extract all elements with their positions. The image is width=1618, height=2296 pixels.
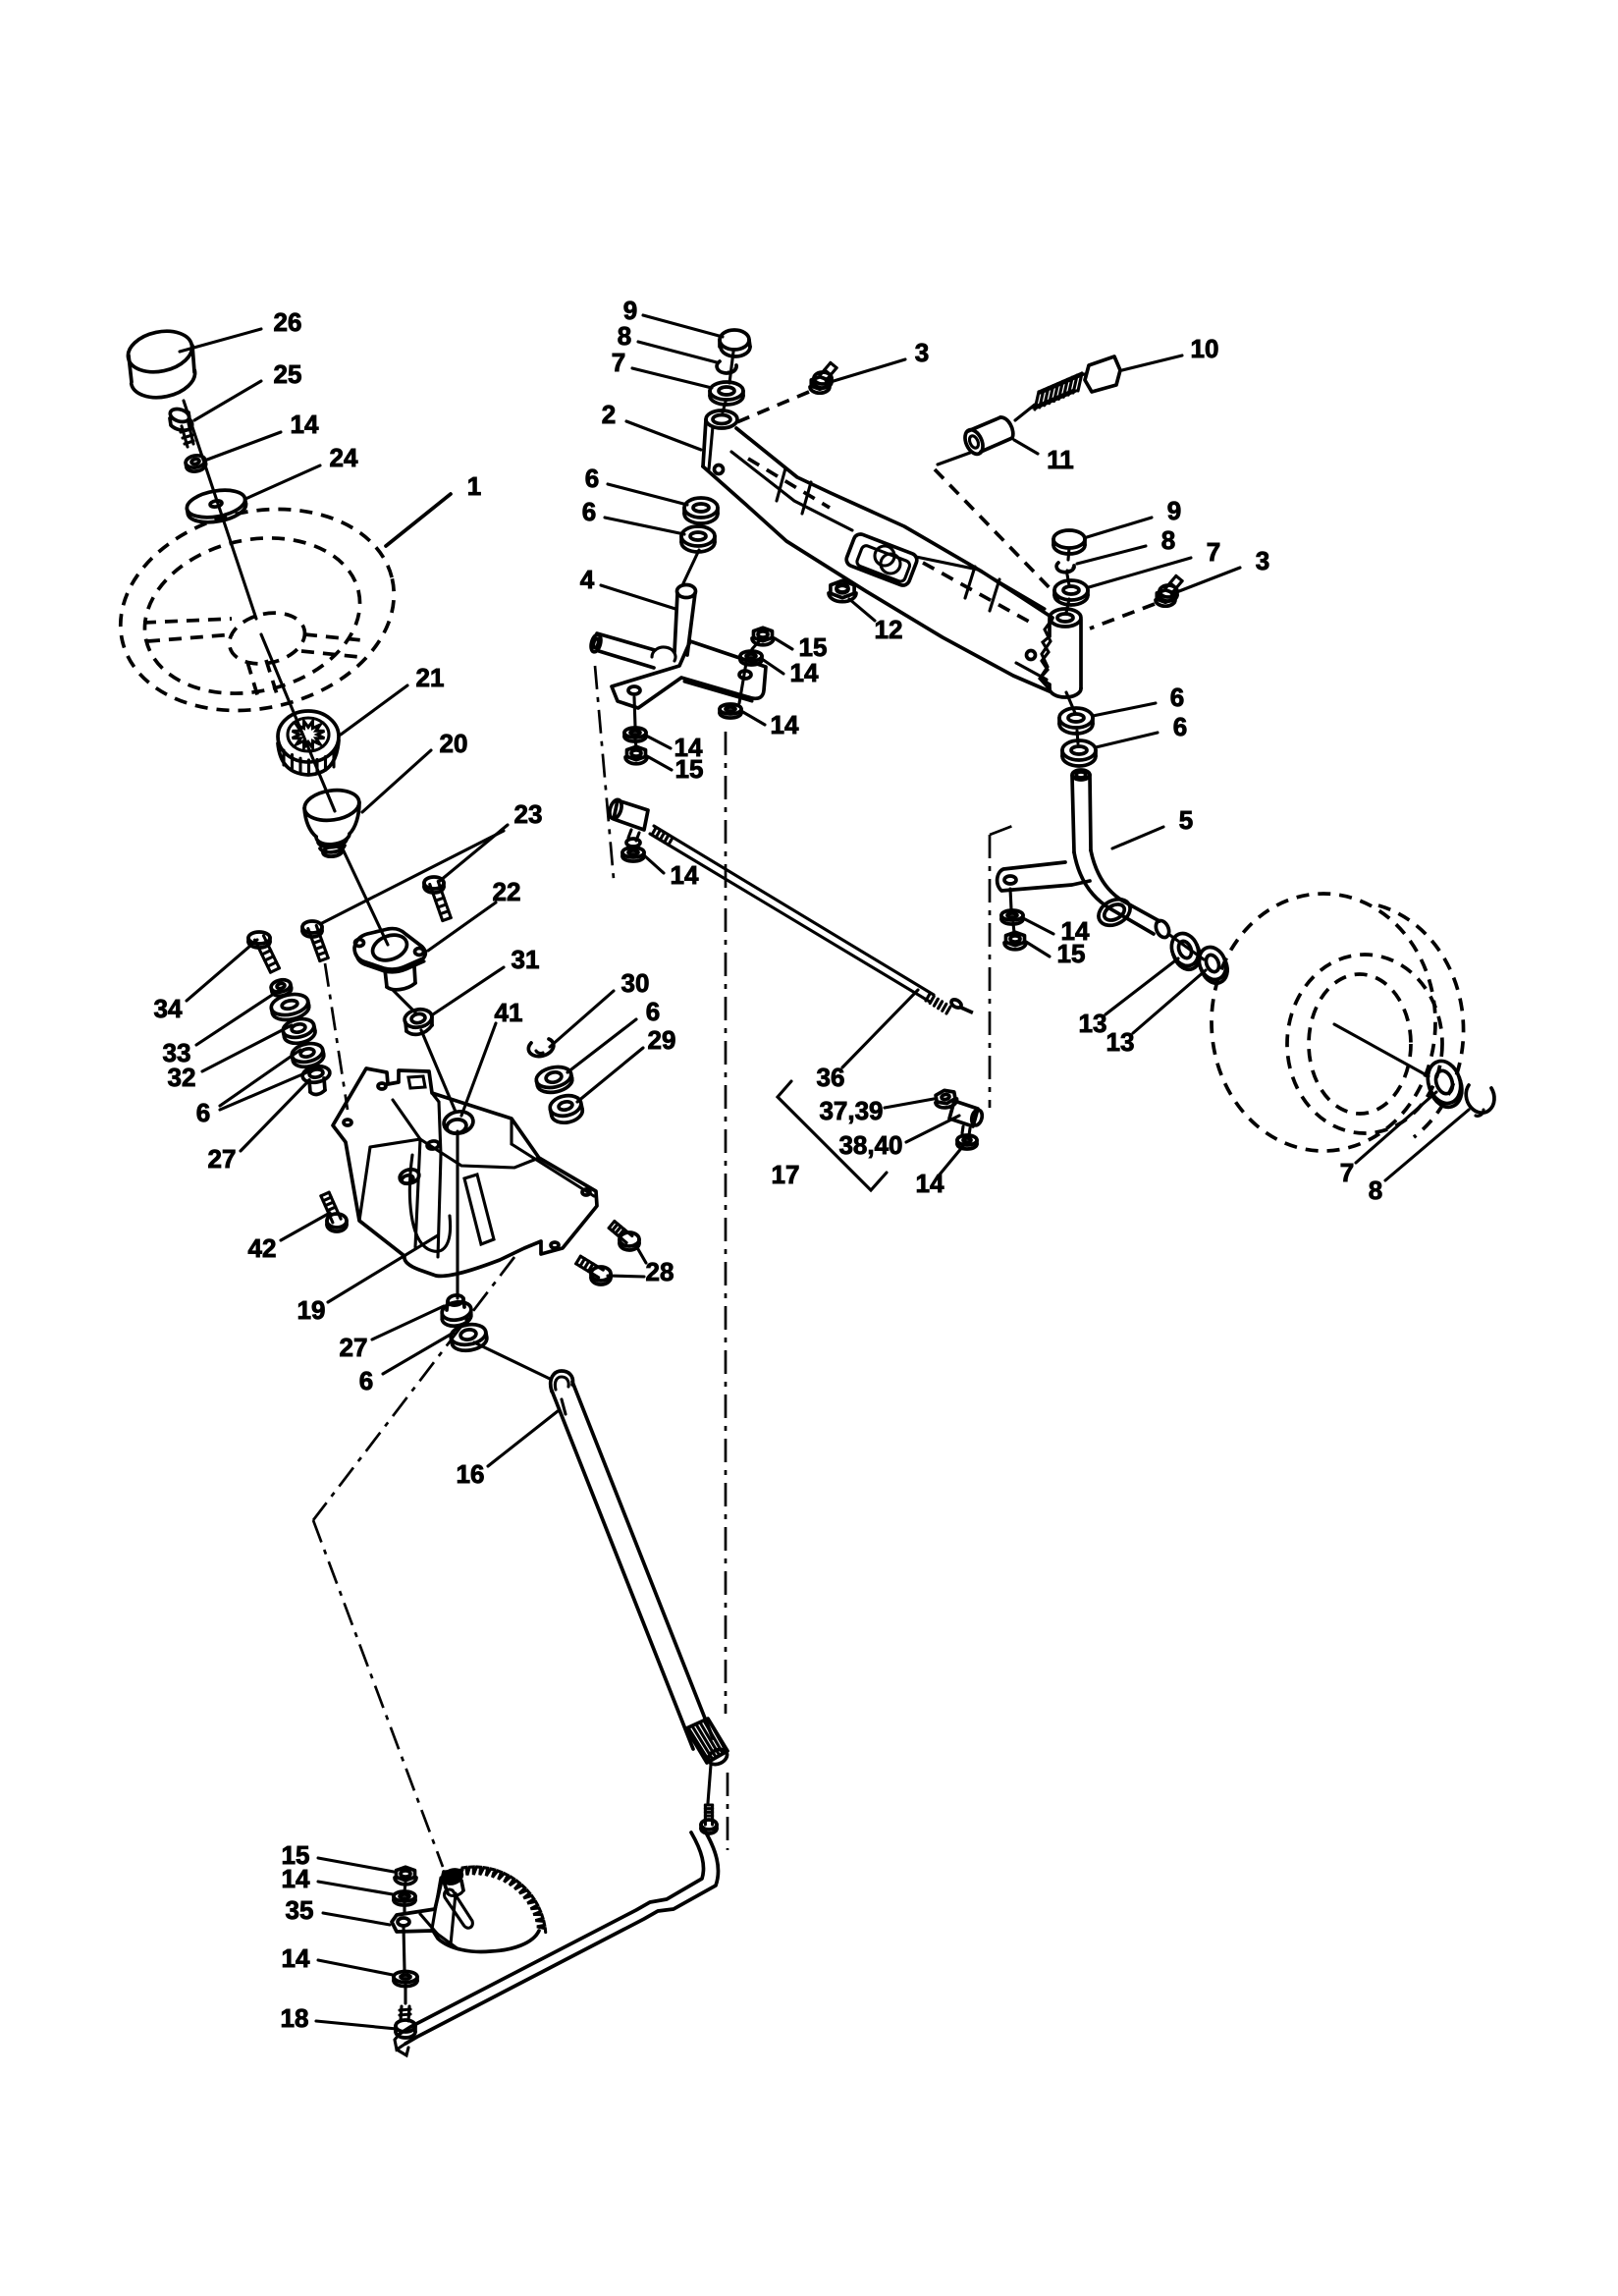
svg-text:6: 6 [646,997,660,1026]
svg-text:8: 8 [1369,1175,1382,1205]
svg-text:42: 42 [248,1233,277,1263]
svg-text:32: 32 [168,1063,196,1092]
svg-text:28: 28 [646,1257,674,1286]
svg-text:24: 24 [330,443,358,472]
svg-text:3: 3 [915,338,929,367]
svg-text:23: 23 [514,799,543,829]
svg-text:31: 31 [512,945,540,974]
svg-text:8: 8 [618,321,631,351]
svg-text:14: 14 [790,658,819,687]
svg-text:5: 5 [1179,805,1193,835]
svg-text:4: 4 [580,565,595,594]
svg-text:10: 10 [1191,334,1219,363]
svg-text:16: 16 [457,1459,485,1489]
svg-text:20: 20 [440,729,468,758]
svg-text:2: 2 [602,400,616,429]
svg-text:6: 6 [1170,683,1184,712]
svg-text:17: 17 [772,1160,800,1189]
svg-text:41: 41 [495,998,523,1027]
svg-text:15: 15 [1057,939,1086,968]
svg-text:6: 6 [1173,712,1187,741]
svg-text:15: 15 [675,754,704,784]
svg-text:29: 29 [648,1025,676,1055]
svg-text:21: 21 [416,663,445,692]
svg-text:14: 14 [291,410,319,439]
svg-text:6: 6 [196,1098,210,1127]
svg-text:6: 6 [585,464,599,493]
svg-text:38,40: 38,40 [838,1130,902,1160]
svg-text:18: 18 [281,2003,309,2033]
svg-text:6: 6 [359,1366,373,1395]
svg-text:12: 12 [875,615,903,644]
svg-text:36: 36 [817,1063,845,1092]
svg-text:14: 14 [282,1864,310,1893]
svg-text:1: 1 [467,471,481,501]
svg-text:11: 11 [1047,445,1074,474]
svg-text:37,39: 37,39 [819,1096,883,1125]
svg-text:27: 27 [340,1333,368,1362]
svg-text:7: 7 [1207,537,1220,567]
svg-text:35: 35 [286,1895,314,1925]
svg-text:19: 19 [297,1295,326,1325]
svg-text:13: 13 [1106,1027,1135,1057]
svg-text:14: 14 [282,1943,310,1973]
svg-text:34: 34 [154,994,183,1023]
svg-text:30: 30 [621,968,650,998]
svg-text:7: 7 [1340,1158,1354,1187]
svg-text:27: 27 [208,1144,237,1174]
svg-text:13: 13 [1079,1009,1107,1038]
svg-text:8: 8 [1161,525,1175,555]
svg-text:25: 25 [274,359,302,389]
svg-text:6: 6 [582,497,596,526]
svg-text:7: 7 [612,348,625,377]
svg-text:26: 26 [274,307,302,337]
svg-text:14: 14 [671,860,699,890]
svg-text:3: 3 [1256,546,1269,575]
svg-text:9: 9 [1167,496,1181,525]
svg-text:14: 14 [771,710,799,739]
